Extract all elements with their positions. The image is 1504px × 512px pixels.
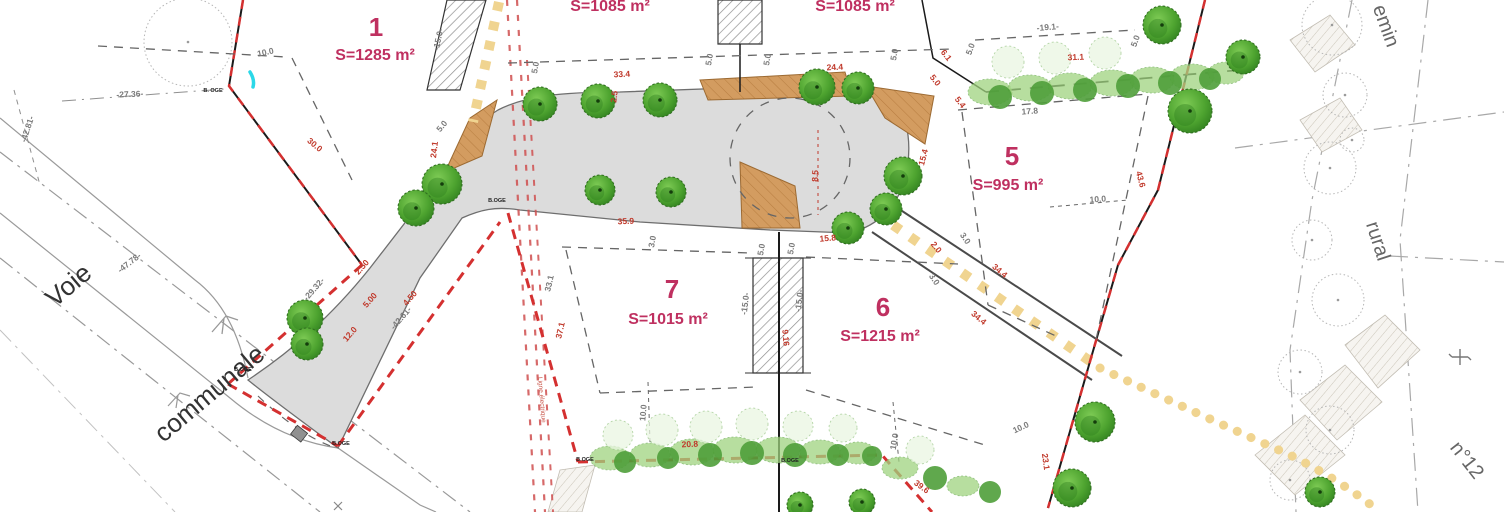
tree-icon	[523, 87, 557, 121]
hedge-shrub	[698, 443, 722, 467]
hedge-shrub	[1030, 81, 1054, 105]
dimension-label: 5.0	[785, 242, 797, 256]
dimension-label: 5.0	[755, 243, 767, 257]
tree-icon	[1305, 477, 1335, 507]
hedge-pale-tree	[603, 420, 633, 450]
dimension-label: 17.8	[1021, 105, 1038, 116]
dimension-label: 5.0	[529, 61, 541, 75]
hedge-shrub	[614, 451, 636, 473]
hedge-shrub	[1073, 78, 1097, 102]
lot-1-area: S=1285 m²	[335, 47, 415, 64]
dimension-label: 9.16	[780, 329, 791, 347]
dimension-label: 35.9	[617, 216, 634, 227]
hedge-shrub	[1199, 68, 1221, 90]
hedge-pale-tree	[736, 408, 768, 440]
dimension-label: 31.1	[1067, 52, 1084, 63]
survey-mark-label: B.OGE	[488, 198, 506, 204]
subdivision-plan: Ligne électrique	[0, 0, 1504, 512]
dimension-label: 5.0	[703, 53, 715, 67]
lot-top-right-area: S=1085 m²	[815, 0, 895, 15]
tree-icon	[656, 177, 686, 207]
lot-5-number: 5	[1005, 141, 1019, 171]
lot-7-area: S=1015 m²	[628, 311, 708, 328]
hedge-shrub	[1116, 74, 1140, 98]
tree-icon	[799, 69, 835, 105]
hedge-pale-tree	[1089, 37, 1121, 69]
hedge-shrub	[657, 447, 679, 469]
hatched-strip	[718, 0, 762, 44]
lot-6-number: 6	[876, 292, 890, 322]
tree-icon	[1168, 89, 1212, 133]
tree-icon	[1226, 40, 1260, 74]
dimension-label: 5.0	[888, 48, 900, 62]
dimension-label: 24.1	[428, 141, 440, 159]
hedge-shrub	[827, 444, 849, 466]
hedge-pale-tree	[1039, 42, 1071, 74]
survey-mark-label: B.OGE	[332, 441, 350, 447]
survey-mark-label: B.OGE	[234, 367, 252, 373]
hedge-shrub	[862, 446, 882, 466]
hedge-shrub	[740, 441, 764, 465]
survey-mark-label: B.OGE	[781, 458, 799, 464]
dimension-label: 33.4	[613, 69, 630, 80]
tree-icon	[291, 328, 323, 360]
hedge-shrub	[1158, 71, 1182, 95]
tree-icon	[398, 190, 434, 226]
tree-icon	[870, 193, 902, 225]
hedge-pale-tree	[906, 436, 934, 464]
tree-icon	[1143, 6, 1181, 44]
tree-icon	[1053, 469, 1091, 507]
dimension-label: -27.36-	[116, 88, 144, 99]
lot-top-left-area: S=1085 m²	[570, 0, 650, 15]
survey-mark-label: B. OGE	[203, 88, 223, 94]
dimension-label: 3.0	[646, 235, 658, 249]
tree-icon	[1075, 402, 1115, 442]
survey-mark-label: B.OGE	[576, 457, 594, 463]
dimension-label: 20.8	[681, 439, 698, 450]
tree-icon	[643, 83, 677, 117]
dimension-label: 2.5	[608, 90, 619, 103]
tree-icon	[585, 175, 615, 205]
lot-5-area: S=995 m²	[973, 177, 1044, 194]
hedge-shrub	[979, 481, 1001, 503]
dimension-label: -19.1-	[1036, 21, 1059, 33]
dimension-label: 15.8	[819, 232, 837, 243]
dimension-label: 24.4	[826, 62, 843, 73]
hedge-pale-tree	[829, 414, 857, 442]
lot-1-number: 1	[369, 12, 383, 42]
lot-6-area: S=1215 m²	[840, 328, 920, 345]
hedge-pale-tree	[646, 414, 678, 446]
hedge-pale-tree	[783, 411, 813, 441]
tree-icon	[832, 212, 864, 244]
hedge-cluster	[947, 476, 979, 496]
hedge-shrub	[988, 85, 1012, 109]
dimension-label: 10.0	[637, 404, 648, 422]
dimension-label: 8.5	[810, 170, 820, 182]
tree-icon	[842, 72, 874, 104]
hedge-pale-tree	[992, 46, 1024, 78]
plan-svg: Ligne électrique	[0, 0, 1504, 512]
dimension-label: 10.0	[1089, 193, 1106, 204]
lot-7-number: 7	[665, 274, 679, 304]
dimension-label: 5.0	[761, 53, 773, 67]
